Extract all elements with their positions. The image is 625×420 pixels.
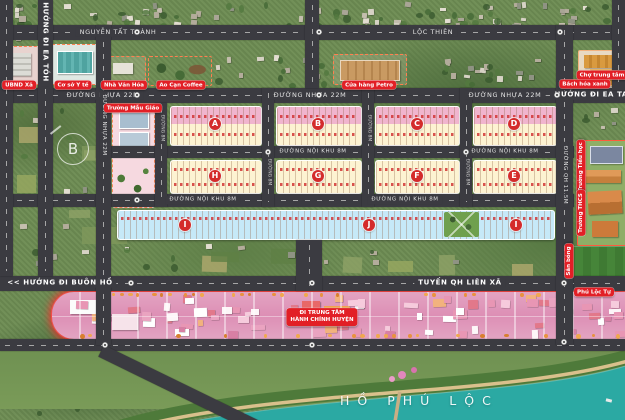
school-building (587, 190, 622, 215)
road-label: NGUYỄN TẤT THÀNH (76, 28, 161, 37)
town-building (589, 313, 600, 319)
road-label: ĐƯỜNG NHỰA 22M (99, 90, 107, 159)
town-building (208, 310, 215, 318)
road-label: ĐƯỜNG 8M (464, 157, 469, 188)
poi-label-market: Chợ trung tâm (577, 70, 625, 79)
street-tree (232, 293, 235, 298)
town-building (222, 307, 232, 314)
street-tree (152, 293, 157, 296)
poi-label-secondary-school: Trường THCS (576, 190, 585, 236)
town-building (527, 299, 538, 307)
town-building (609, 309, 621, 314)
poi-label-coffee: Ao Cạn Coffee (156, 80, 205, 89)
road-marker-dot (135, 30, 140, 35)
road-label: LỘC THIÊN (409, 28, 458, 37)
street-tree (296, 334, 300, 338)
blossom-tree (411, 367, 417, 373)
town-building (443, 316, 456, 322)
block-badge-A: A (209, 118, 221, 130)
poi-label-culture-house: Nhà Văn Hóa (101, 80, 147, 89)
block-badge-G: G (312, 170, 324, 182)
block-badge-H: H (209, 170, 221, 182)
road-marker-dot (135, 198, 140, 203)
kindergarten-building (119, 132, 149, 147)
town-building (251, 309, 260, 315)
street-tree (200, 293, 204, 297)
town-building (179, 327, 185, 332)
street-tree (504, 334, 509, 337)
town-building (198, 320, 203, 326)
town-building (582, 304, 592, 310)
town-building (181, 324, 193, 330)
street-tree (176, 334, 181, 338)
street-tree (184, 293, 187, 298)
town-building (605, 316, 611, 321)
culture-house-building (113, 63, 133, 74)
town-building (251, 325, 265, 331)
clinic-compound (50, 44, 99, 85)
town-building (535, 323, 544, 328)
park-inset (444, 212, 479, 237)
block-badge-J: J (363, 219, 375, 231)
road-8m-strip-3 (362, 88, 374, 207)
school-building (585, 170, 621, 183)
town-building (348, 300, 360, 307)
street-tree (248, 293, 251, 296)
road-marker-dot (310, 343, 315, 348)
school-building (590, 146, 623, 164)
road-label-direction: HƯỚNG ĐI EA TÓH (41, 0, 50, 86)
town-building (468, 300, 478, 309)
street-tree (128, 293, 133, 297)
town-building (128, 307, 140, 314)
street-tree (360, 334, 365, 338)
poi-label-football-field: Sân bóng (564, 243, 573, 278)
street-tree (272, 293, 276, 296)
road-marker-dot (129, 281, 134, 286)
admin-center-line1: ĐI TRUNG TÂM (290, 310, 353, 317)
town-building (228, 331, 238, 339)
street-tree (160, 293, 163, 298)
town-building (164, 302, 171, 310)
town-building (472, 326, 478, 334)
town-building (238, 316, 249, 324)
road-label-direction: HƯỚNG ĐI EA TAM (550, 91, 625, 100)
road-central-upper (305, 0, 319, 88)
town-building (141, 311, 151, 321)
street-tree (240, 293, 244, 297)
town-building (611, 301, 620, 308)
town-building-large (112, 314, 138, 330)
street-tree (464, 293, 467, 298)
street-tree (88, 334, 92, 337)
street-tree (280, 293, 284, 298)
block-badge-F: F (411, 170, 423, 182)
admin-center-line2: HÀNH CHÍNH HUYỆN (290, 317, 353, 324)
street-tree (352, 334, 356, 338)
street-tree (416, 334, 419, 337)
town-building (404, 303, 418, 308)
masterplan-map: NGUYỄN TẤT THÀNH LỘC THIÊN ĐƯỜNG NHỰA 22… (0, 0, 625, 420)
road-marker-dot (562, 340, 567, 345)
road-label: ĐƯỜNG NỘI KHU 8M (165, 196, 240, 204)
street-tree (424, 293, 428, 297)
town-building (501, 300, 510, 309)
block-badge-I: I (179, 219, 191, 231)
street-tree (224, 334, 227, 338)
street-tree (264, 334, 267, 338)
poi-label-petro: Cửa hàng Petro (342, 80, 396, 89)
town-building (456, 308, 464, 314)
road-noi-khu-8m-lower (0, 194, 574, 207)
street-tree (384, 334, 388, 338)
block-badge-E: E (508, 170, 520, 182)
street-tree (328, 334, 332, 337)
street-tree (536, 293, 541, 297)
town-building (488, 300, 496, 307)
road-marker-dot (562, 281, 567, 286)
town-building (614, 312, 624, 320)
block-badge-B: B (312, 118, 324, 130)
kindergarten-building (119, 112, 149, 129)
street-tree (432, 293, 436, 298)
road-label: ĐƯỜNG NHỰA 22M (270, 91, 351, 100)
town-building (598, 318, 604, 325)
road-marker-dot (135, 93, 140, 98)
town-building (210, 315, 219, 321)
street-tree (120, 293, 124, 296)
poi-label-pagoda: Phú Lộc Tự (574, 287, 614, 296)
town-building (143, 318, 155, 327)
street-tree (192, 293, 195, 296)
block-badge-C: C (411, 118, 423, 130)
town-building (167, 312, 178, 321)
road-label-direction: << HƯỚNG ĐI BUÔN HỒ (3, 279, 116, 288)
road-marker-dot (558, 30, 563, 35)
town-building (185, 298, 194, 304)
street-tree (592, 334, 595, 337)
football-field (566, 246, 625, 278)
road-label: ĐƯỜNG 8M (266, 157, 271, 188)
town-building (532, 330, 538, 339)
street-tree (336, 293, 339, 298)
road-nhua-22m-vertical (96, 25, 111, 345)
street-tree (576, 334, 581, 339)
brand-watermark: B (57, 133, 89, 165)
town-building (444, 295, 451, 302)
street-tree (520, 293, 524, 297)
town-building (417, 313, 422, 320)
street-tree (136, 293, 139, 298)
street-tree (376, 334, 380, 338)
street-tree (544, 334, 548, 338)
town-building (358, 298, 365, 307)
town-building (245, 312, 251, 317)
town-building (228, 307, 241, 313)
block-badge-I2: I (510, 219, 522, 231)
road-label: ĐƯỜNG NỘI KHU 8M (467, 148, 542, 156)
road-marker-dot (103, 343, 108, 348)
road-label: ĐƯỜNG NỘI KHU 8M (367, 196, 442, 204)
clinic-building (57, 51, 93, 74)
lake-name-label: HỒ PHÚ LỘC (340, 393, 499, 408)
school-building (592, 221, 618, 237)
town-building (313, 328, 326, 337)
road-label: ĐƯỜNG NỘI KHU 8M (275, 148, 350, 156)
block-badge-D: D (508, 118, 520, 130)
road-label: ĐƯỜNG QH 11.5M (560, 142, 568, 208)
road-marker-dot (317, 93, 322, 98)
street-tree (472, 293, 476, 297)
street-tree (168, 293, 172, 297)
road-label: ĐƯỜNG 8M (159, 113, 164, 144)
poi-label-kindergarten: Trường Mẫu Giáo (104, 103, 162, 112)
road-marker-dot (266, 150, 271, 155)
street-tree (304, 293, 308, 297)
town-building (425, 329, 433, 335)
blossom-tree (398, 371, 406, 379)
road-marker-dot (555, 93, 560, 98)
street-tree (320, 293, 323, 298)
road-marker-dot (310, 281, 315, 286)
town-building (385, 326, 391, 334)
town-building (194, 308, 207, 318)
town-building (167, 317, 172, 324)
market-building (584, 55, 615, 68)
admin-center-badge: ĐI TRUNG TÂM HÀNH CHÍNH HUYỆN (286, 308, 357, 326)
road-label-direction: TUYẾN QH LIÊN XÃ (414, 279, 505, 288)
street-tree (408, 334, 412, 338)
poi-label-clinic: Cơ sở Y tế (55, 80, 92, 89)
road-label: ĐƯỜNG NHỰA 22M (465, 91, 546, 100)
blossom-tree (389, 376, 395, 382)
road-label: ĐƯỜNG 8M (366, 113, 371, 144)
town-building (76, 301, 88, 310)
street-tree (480, 334, 485, 338)
street-tree (56, 334, 61, 338)
street-tree (392, 334, 396, 338)
petro-building (340, 60, 400, 81)
poi-label-bach-hoa-xanh: Bách hóa xanh (559, 79, 610, 88)
road-west-edge (0, 0, 13, 276)
town-building (526, 295, 536, 302)
town-building (432, 299, 445, 308)
poi-label-primary-school: Trường Tiểu học (576, 139, 585, 194)
town-building (539, 300, 551, 306)
poi-label-ubnd: UBND Xã (2, 80, 36, 89)
town-building (453, 310, 467, 320)
road-8m-strip-2 (262, 88, 274, 207)
road-marker-dot (464, 150, 469, 155)
street-tree (456, 334, 460, 337)
road-marker-dot (317, 30, 322, 35)
street-tree (112, 293, 115, 297)
